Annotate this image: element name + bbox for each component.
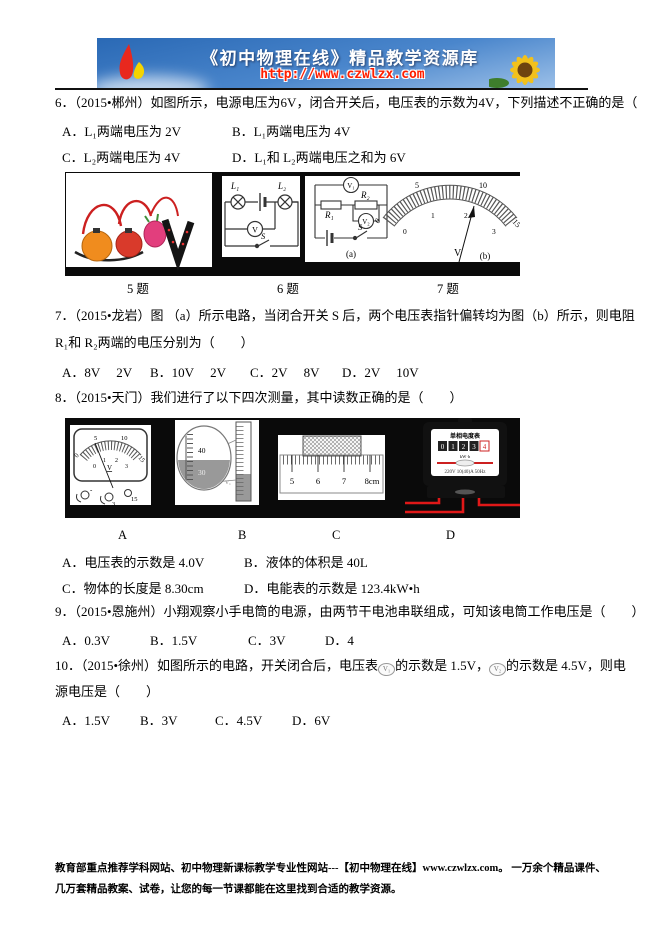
q10-option-d: D．6V: [292, 710, 330, 729]
fruit-battery-photo: [66, 173, 212, 267]
svg-text:10: 10: [121, 435, 128, 442]
site-banner: 《初中物理在线》精品教学资源库 http://www.czwlzx.com: [97, 38, 555, 88]
q9-stem: 9．（2015•恩施州）小翔观察小手电筒的电源，由两节干电池串联组成，可知该电筒…: [55, 604, 645, 619]
q8-option-b: B．液体的体积是 40L: [244, 552, 368, 571]
svg-text:2: 2: [464, 211, 468, 220]
figure-caption-q5: 5 题: [127, 278, 149, 297]
banner-url[interactable]: http://www.czwlzx.com: [260, 67, 424, 82]
svg-text:8cm: 8cm: [365, 476, 380, 486]
q8-option-d: D．电能表的示数是 123.4kW•h: [244, 578, 420, 597]
svg-text:15: 15: [131, 496, 138, 503]
svg-text:5: 5: [290, 476, 294, 486]
q7-stem-line2: R₁和 R₂两端的电压分别为（ ）: [55, 335, 254, 350]
q10-option-c: C．4.5V: [215, 710, 262, 729]
q6-option-a: A．L₁两端电压为 2V: [62, 121, 181, 140]
figure-caption-b: B: [238, 528, 246, 543]
header-divider: [55, 88, 588, 90]
svg-text:L₂: L₂: [277, 181, 286, 191]
voltmeter-v1-icon: V₁: [378, 663, 395, 676]
figure-strip-questions-5-6-7: L₁ L₂ V S V₁ V₂ R₁ R₂ S (a): [65, 172, 520, 276]
q8-stem: 8．（2015•天门）我们进行了以下四次测量，其中读数正确的是（ ）: [55, 390, 463, 405]
svg-text:V₂: V₂: [362, 218, 370, 226]
svg-text:40: 40: [198, 446, 206, 455]
svg-text:2: 2: [462, 443, 466, 451]
q10-stem-line1: 10．（2015•徐州）如图所示的电路，开关闭合后，电压表V₁的示数是 1.5V…: [55, 658, 626, 676]
svg-text:(a): (a): [346, 249, 356, 259]
figure-strip-question-8: 0 5 10 15 0 1 2 3 V - 3 15: [65, 418, 520, 518]
figure-caption-d: D: [446, 528, 455, 543]
svg-text:3: 3: [125, 464, 128, 470]
svg-text:1: 1: [431, 211, 435, 220]
q9-option-b: B．1.5V: [150, 630, 197, 649]
svg-text:kW·h: kW·h: [460, 454, 471, 459]
q7-option-a: A．8V 2V: [62, 362, 132, 381]
footer-promo-text: 教育部重点推荐学科网站、初中物理新课标教学专业性网站---【初中物理在线】www…: [55, 858, 607, 900]
svg-text:10: 10: [479, 181, 487, 190]
q6-option-b: B．L₁两端电压为 4V: [232, 121, 350, 140]
q6-stem: 6．（2015•郴州）如图所示，电源电压为6V，闭合开关后，电压表的示数为4V，…: [55, 95, 661, 110]
q6-option-c: C．L₂两端电压为 4V: [62, 147, 180, 166]
q10-option-a: A．1.5V: [62, 710, 110, 729]
graduated-cylinder-figure-b: 40 30 V₁: [175, 420, 259, 505]
svg-text:V₁: V₁: [225, 480, 231, 486]
svg-text:5: 5: [415, 181, 419, 190]
svg-text:0: 0: [93, 464, 96, 470]
q10-stem-line2: 源电压是（ ）: [55, 684, 159, 699]
figure-caption-q6: 6 题: [277, 278, 299, 297]
figure-caption-q7: 7 题: [437, 278, 459, 297]
voltmeter-figure-a: 0 5 10 15 0 1 2 3 V - 3 15: [70, 425, 151, 508]
q10-stem-part1: 10．（2015•徐州）如图所示的电路，开关闭合后，电压表: [55, 658, 378, 673]
sunflower-icon: [489, 50, 551, 88]
q10-stem-part2: 的示数是 1.5V，: [395, 658, 489, 673]
flame-logo-icon: [115, 42, 155, 86]
q6-option-d: D．L₁和 L₂两端电压之和为 6V: [232, 147, 406, 166]
svg-text:V: V: [107, 464, 112, 472]
svg-text:3: 3: [492, 227, 496, 236]
figure-caption-c: C: [332, 528, 340, 543]
q7-option-c: C．2V 8V: [250, 362, 319, 381]
svg-text:R₂: R₂: [360, 190, 370, 200]
svg-text:3: 3: [112, 501, 115, 508]
circuit-diagram-q6: L₁ L₂ V S: [222, 176, 300, 257]
figure-caption-a: A: [118, 528, 127, 543]
q8-option-a: A．电压表的示数是 4.0V: [62, 552, 204, 571]
exam-page: 《初中物理在线》精品教学资源库 http://www.czwlzx.com 6．…: [0, 0, 661, 936]
svg-text:5: 5: [94, 435, 97, 442]
q8-option-c: C．物体的长度是 8.30cm: [62, 578, 204, 597]
svg-text:0: 0: [441, 443, 445, 451]
svg-text:4: 4: [483, 443, 487, 451]
svg-text:3: 3: [472, 443, 476, 451]
svg-text:R₁: R₁: [324, 210, 334, 220]
svg-text:2: 2: [115, 458, 118, 464]
svg-text:220V 10(40)A 50Hz: 220V 10(40)A 50Hz: [444, 470, 486, 475]
svg-text:7: 7: [342, 476, 346, 486]
svg-text:V₁: V₁: [347, 182, 355, 190]
svg-text:6: 6: [316, 476, 320, 486]
svg-text:单相电度表: 单相电度表: [450, 432, 481, 440]
q9-option-c: C．3V: [248, 630, 286, 649]
svg-text:(b): (b): [480, 251, 491, 261]
q10-stem-part3: 的示数是 4.5V，则电: [506, 658, 626, 673]
q7-option-d: D．2V 10V: [342, 362, 419, 381]
q7-option-b: B．10V 2V: [150, 362, 226, 381]
q9-option-a: A．0.3V: [62, 630, 110, 649]
svg-text:1: 1: [451, 443, 455, 451]
voltmeter-v2-icon: V₂: [489, 663, 506, 676]
ruler-figure-c: 5 6 7 8cm: [278, 435, 385, 500]
q10-option-b: B．3V: [140, 710, 178, 729]
banner-title: 《初中物理在线》精品教学资源库: [201, 44, 479, 69]
svg-text:0: 0: [403, 227, 407, 236]
svg-text:L₁: L₁: [230, 181, 239, 191]
svg-text:30: 30: [198, 468, 206, 477]
q7-stem-line1: 7．（2015•龙岩）图 （a）所示电路，当闭合开关 S 后，两个电压表指针偏转…: [55, 308, 635, 323]
svg-text:V: V: [454, 248, 462, 259]
svg-text:V: V: [252, 226, 258, 235]
q9-option-d: D．4: [325, 630, 354, 649]
